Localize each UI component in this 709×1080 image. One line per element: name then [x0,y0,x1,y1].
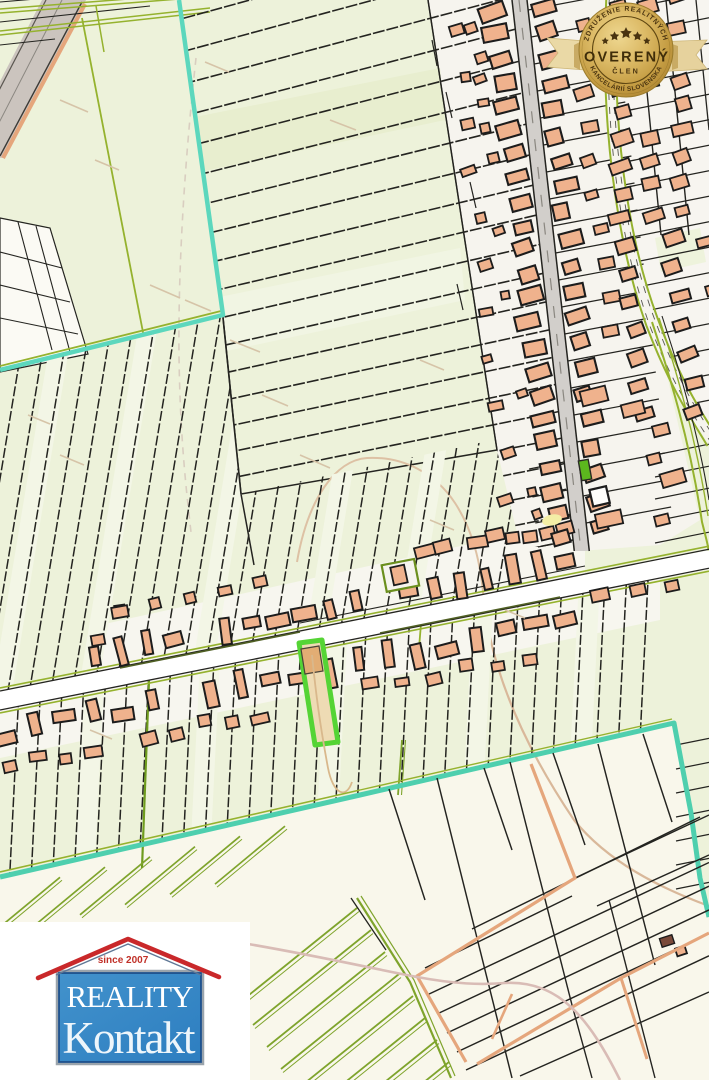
svg-text:ČLEN: ČLEN [612,67,640,76]
svg-text:since 2007: since 2007 [98,955,149,966]
svg-text:Kontakt: Kontakt [63,1013,196,1063]
svg-text:OVERENÝ: OVERENÝ [584,48,668,66]
svg-text:REALITY: REALITY [67,979,194,1014]
